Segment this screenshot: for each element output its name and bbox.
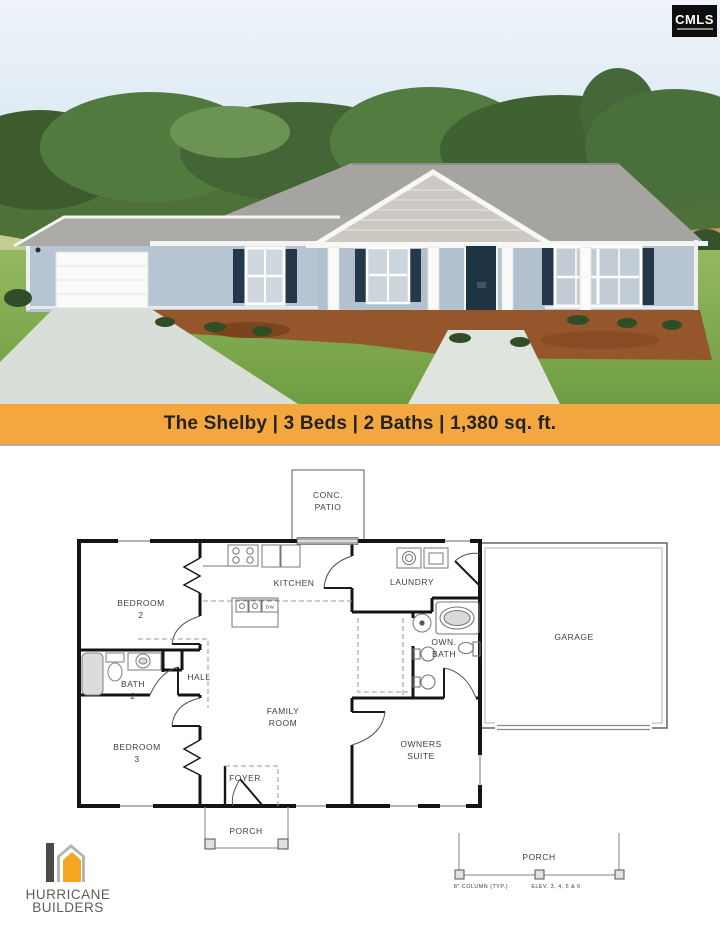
room-label-front-porch: PORCH xyxy=(229,826,262,836)
room-label-family: FAMILY xyxy=(267,706,300,716)
title-banner: The Shelby | 3 Beds | 2 Baths | 1,380 sq… xyxy=(0,404,720,446)
builder-name-line2: BUILDERS xyxy=(20,902,116,915)
dashed-lines xyxy=(138,601,408,806)
logo-bar xyxy=(46,843,54,882)
room-label-bedroom2-num: 2 xyxy=(138,610,143,620)
cmls-logo-subline xyxy=(677,28,713,30)
room-label-conc-patio2: PATIO xyxy=(315,502,342,512)
room-label-bath2: BATH xyxy=(121,679,145,689)
garage-door xyxy=(56,252,148,308)
dishwasher-label: DW xyxy=(266,605,275,610)
window-porch xyxy=(355,248,421,303)
room-label-bedroom3-num: 3 xyxy=(134,754,139,764)
flyer-page: CMLS The Shelby | 3 Beds | 2 Baths | 1,3… xyxy=(0,0,720,932)
room-label-bath2-num: 2 xyxy=(130,691,135,701)
room-label-conc-patio: CONC. xyxy=(313,490,343,500)
room-label-own-bath: OWN. xyxy=(431,637,456,647)
room-label-bedroom2: BEDROOM xyxy=(117,598,164,608)
room-label-owners-suite: OWNERS xyxy=(400,739,441,749)
room-label-hall: HALL xyxy=(187,672,210,682)
corner-trim-right xyxy=(694,240,698,310)
room-label-family2: ROOM xyxy=(269,718,297,728)
room-label-own-bath2: BATH xyxy=(432,649,456,659)
column-note: 8" COLUMN (TYP.) xyxy=(454,884,508,890)
room-label-rear-porch: PORCH xyxy=(522,852,555,862)
room-label-garage: GARAGE xyxy=(554,632,593,642)
banner-text: The Shelby | 3 Beds | 2 Baths | 1,380 sq… xyxy=(164,413,556,435)
room-label-bedroom3: BEDROOM xyxy=(113,742,160,752)
house-photo xyxy=(0,0,720,404)
cmls-logo-text: CMLS xyxy=(675,13,714,26)
bifold-doors xyxy=(184,558,200,775)
builder-logo-mark xyxy=(22,836,114,884)
window-left xyxy=(233,248,297,304)
room-label-laundry: LAUNDRY xyxy=(390,577,434,587)
builder-logo: HURRICANE BUILDERS xyxy=(20,836,116,914)
porch-light xyxy=(36,248,41,253)
elevation-note: ELEV. 3, 4, 5 & 6 xyxy=(531,884,580,890)
mulch-shadow2 xyxy=(540,331,660,349)
window-right xyxy=(542,247,654,306)
cmls-logo: CMLS xyxy=(672,5,717,37)
room-label-foyer: FOYER xyxy=(229,773,261,783)
room-label-kitchen: KITCHEN xyxy=(274,578,315,588)
room-label-owners-suite2: SUITE xyxy=(407,751,435,761)
